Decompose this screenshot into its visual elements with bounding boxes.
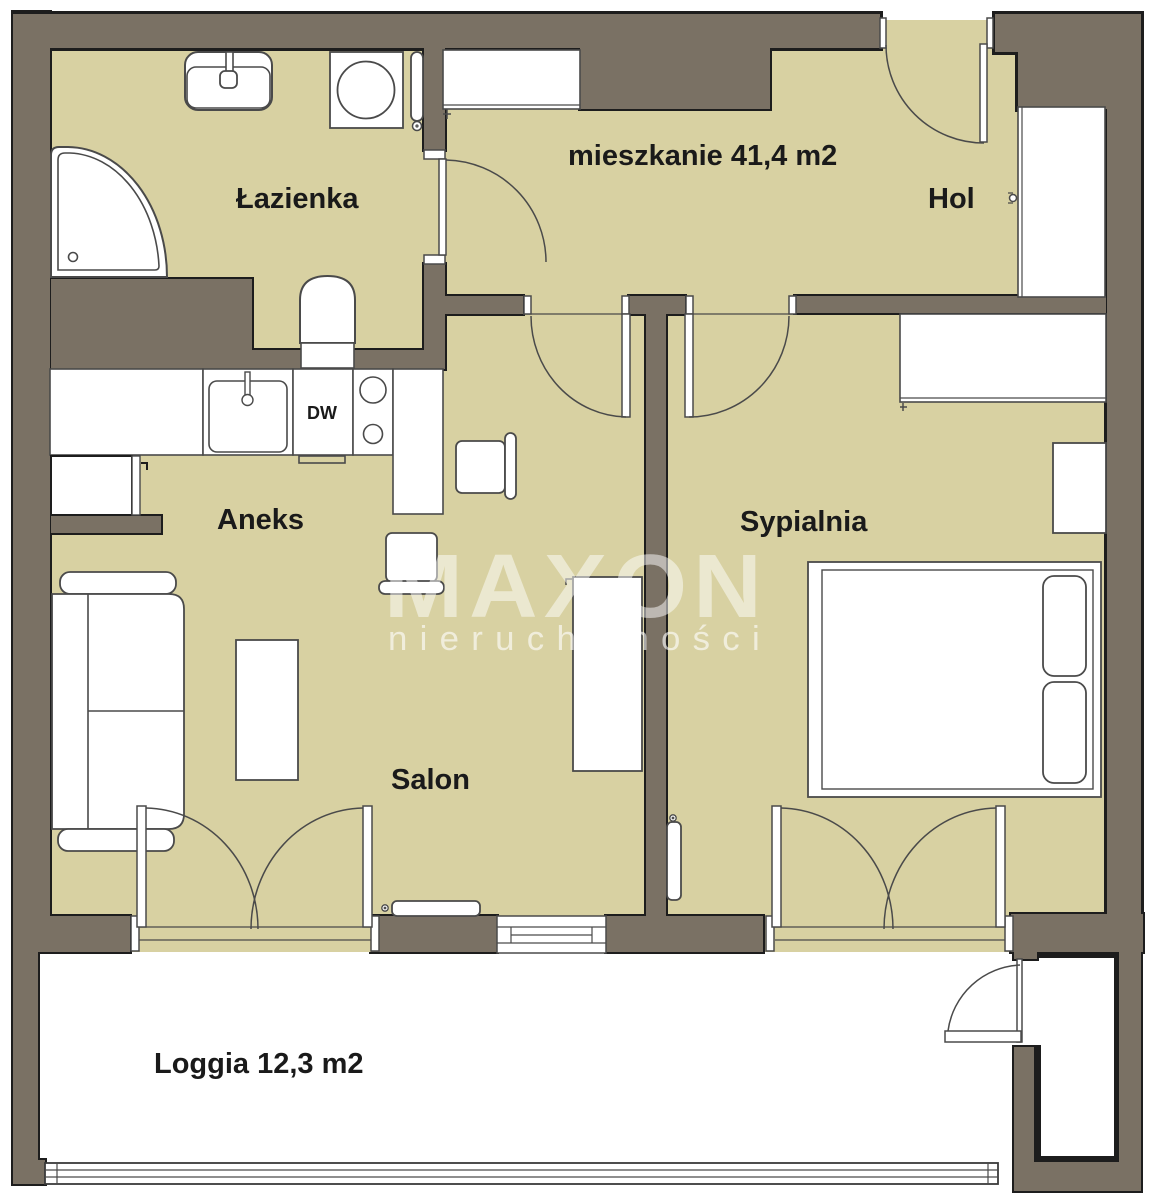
svg-text:Hol: Hol xyxy=(928,183,975,215)
svg-text:Aneks: Aneks xyxy=(217,504,304,536)
svg-text:Loggia 12,3 m2: Loggia 12,3 m2 xyxy=(154,1048,364,1080)
svg-text:nieruchomości: nieruchomości xyxy=(388,620,772,658)
svg-text:Łazienka: Łazienka xyxy=(236,183,359,215)
svg-text:DW: DW xyxy=(307,403,337,423)
svg-text:Sypialnia: Sypialnia xyxy=(740,506,868,538)
svg-text:mieszkanie 41,4 m2: mieszkanie 41,4 m2 xyxy=(568,140,837,172)
svg-text:Salon: Salon xyxy=(391,764,470,796)
